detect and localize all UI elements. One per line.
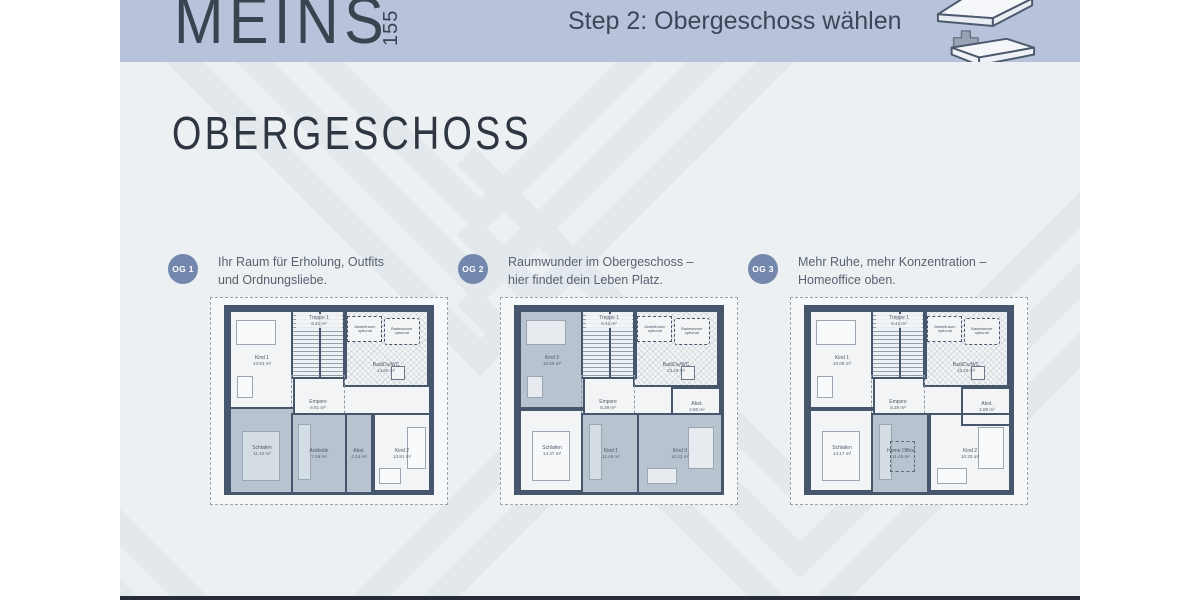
room-stairs: Treppe 1 6.41 m²	[291, 310, 347, 379]
og2-description-line1: Raumwunder im Obergeschoss –	[508, 255, 694, 269]
brand-number: 155	[380, 10, 403, 46]
option-og2: OG 2 Raumwunder im Obergeschoss – hier f…	[452, 254, 744, 584]
room-top-left: Kind 2 10.09 m²	[519, 310, 585, 411]
room-bath: Abstellraum optional Badewanne optional …	[633, 310, 719, 387]
og1-description: Ihr Raum für Erholung, Outfits und Ordnu…	[218, 254, 384, 289]
page-title: OBERGESCHOSS	[172, 106, 532, 160]
room-bath: Abstellraum optional Badewanne optional …	[923, 310, 1009, 387]
og3-description-line2: Homeoffice oben.	[798, 273, 896, 287]
floorplan-og3[interactable]: Kind 1 10.09 m² Treppe 1 6.41 m² Abstell…	[790, 297, 1028, 505]
og3-description: Mehr Ruhe, mehr Konzentration – Homeoffi…	[798, 254, 986, 289]
optional-bathtub-label: Badewanne optional	[384, 318, 420, 345]
og3-badge[interactable]: OG 3	[748, 254, 778, 284]
header-band: MEINS 155 Step 2: Obergeschoss wählen	[120, 0, 1080, 62]
og2-badge[interactable]: OG 2	[458, 254, 488, 284]
optional-bathtub-label: Badewanne optional	[964, 318, 1000, 345]
option-og1-header: OG 1 Ihr Raum für Erholung, Outfits und …	[162, 254, 454, 289]
og3-description-line1: Mehr Ruhe, mehr Konzentration –	[798, 255, 986, 269]
room-bottom-right: Kind 3 10.33 m²	[637, 413, 723, 494]
floorplan-og2[interactable]: Kind 2 10.09 m² Treppe 1 6.41 m² Abstell…	[500, 297, 738, 505]
bottom-divider	[120, 596, 1080, 600]
room-stairs: Treppe 1 6.41 m²	[871, 310, 927, 379]
option-og3-header: OG 3 Mehr Ruhe, mehr Konzentration – Hom…	[742, 254, 1034, 289]
room-bottom-middle: Kind 1 11.46 m²	[581, 413, 641, 494]
room-bath: Abstellraum optional Badewanne optional …	[343, 310, 429, 387]
og1-description-line2: und Ordnungsliebe.	[218, 273, 327, 287]
optional-storage-label: Abstellraum optional	[927, 316, 962, 341]
room-top-left: Kind 1 10.09 m²	[809, 310, 875, 411]
optional-storage-label: Abstellraum optional	[637, 316, 672, 341]
floorplan-og1-house: Kind 1 13.53 m² Treppe 1 6.41 m² Abstell…	[224, 305, 434, 495]
step-title: Step 2: Obergeschoss wählen	[568, 7, 902, 36]
option-og3: OG 3 Mehr Ruhe, mehr Konzentration – Hom…	[742, 254, 1034, 584]
room-bottom-left: Schlafen 14.37 m²	[519, 407, 585, 494]
og2-description-line2: hier findet dein Leben Platz.	[508, 273, 663, 287]
room-bottom-right: Kind 2 10.33 m²	[927, 413, 1013, 494]
room-top-left: Kind 1 13.53 m²	[229, 310, 295, 411]
room-stairs: Treppe 1 6.41 m²	[581, 310, 637, 379]
og2-description: Raumwunder im Obergeschoss – hier findet…	[508, 254, 694, 289]
optional-storage-label: Abstellraum optional	[347, 316, 382, 341]
room-bottom-right: Kind 2 13.91 m²	[371, 413, 433, 494]
floorplan-og2-house: Kind 2 10.09 m² Treppe 1 6.41 m² Abstell…	[514, 305, 724, 495]
room-bottom-left: Schlafen 14.17 m²	[809, 407, 875, 494]
og1-description-line1: Ihr Raum für Erholung, Outfits	[218, 255, 384, 269]
room-bottom-middle: Ankleide 7.08 m²	[291, 413, 347, 494]
configurator-screen: MEINS 155 Step 2: Obergeschoss wählen OB…	[0, 0, 1200, 600]
option-og2-header: OG 2 Raumwunder im Obergeschoss – hier f…	[452, 254, 744, 289]
content-area: OBERGESCHOSS OG 1 Ihr Raum für Erholung,…	[120, 62, 1080, 600]
add-floor-icon	[932, 0, 1040, 62]
floorplan-og3-house: Kind 1 10.09 m² Treppe 1 6.41 m² Abstell…	[804, 305, 1014, 495]
floorplan-og1[interactable]: Kind 1 13.53 m² Treppe 1 6.41 m² Abstell…	[210, 297, 448, 505]
room-bottom-left: Schlafen 11.42 m²	[229, 407, 295, 494]
room-bottom-middle: Home Office 11.45 m²	[871, 413, 931, 494]
optional-bathtub-label: Badewanne optional	[674, 318, 710, 345]
option-og1: OG 1 Ihr Raum für Erholung, Outfits und …	[162, 254, 454, 584]
og1-badge[interactable]: OG 1	[168, 254, 198, 284]
brand-logo: MEINS	[174, 0, 389, 58]
